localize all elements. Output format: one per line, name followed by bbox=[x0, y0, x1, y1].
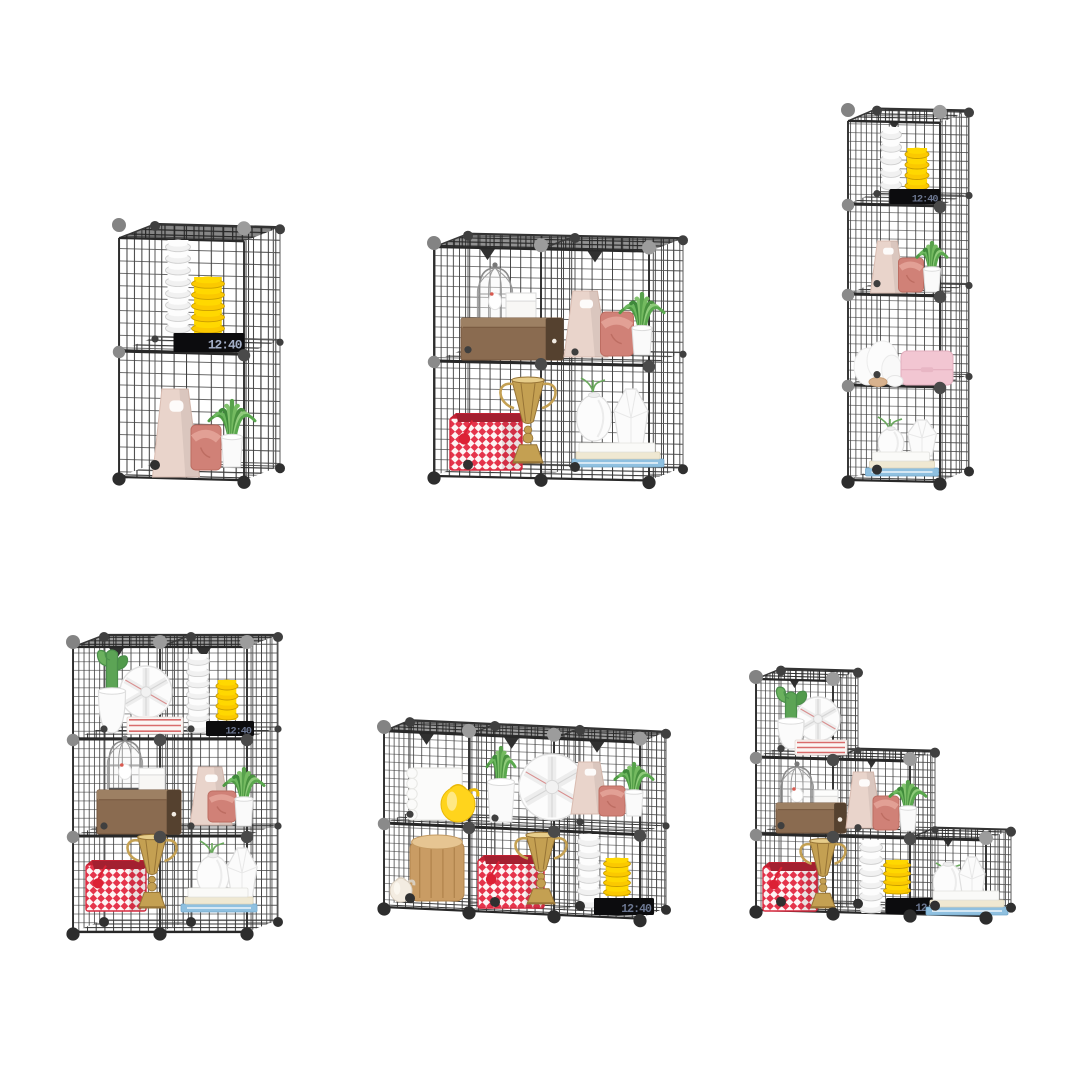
svg-text:12:40: 12:40 bbox=[208, 338, 242, 353]
svg-text:12:40: 12:40 bbox=[912, 194, 938, 205]
svg-text:12:40: 12:40 bbox=[621, 903, 652, 916]
